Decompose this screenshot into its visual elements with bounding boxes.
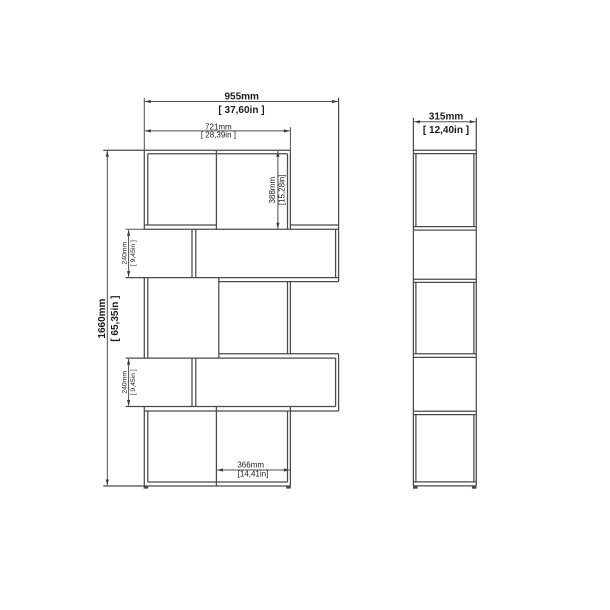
svg-text:240mm: 240mm xyxy=(121,241,128,264)
svg-text:1660mm: 1660mm xyxy=(97,298,108,338)
svg-text:240mm: 240mm xyxy=(121,371,128,394)
svg-text:[ 65,35in ]: [ 65,35in ] xyxy=(110,296,121,342)
svg-text:955mm: 955mm xyxy=(224,92,259,103)
svg-text:[ 28,39in ]: [ 28,39in ] xyxy=(201,131,236,140)
svg-text:388mm: 388mm xyxy=(268,177,277,204)
svg-text:[14,41in]: [14,41in] xyxy=(238,470,269,479)
svg-text:[15,28in]: [15,28in] xyxy=(278,174,287,205)
svg-text:366mm: 366mm xyxy=(237,461,264,470)
svg-text:315mm: 315mm xyxy=(429,111,464,122)
svg-text:[ 37,60in ]: [ 37,60in ] xyxy=(218,105,264,116)
svg-text:[ 12,40in ]: [ 12,40in ] xyxy=(423,125,469,136)
svg-text:[ 9,45in ]: [ 9,45in ] xyxy=(130,369,137,395)
svg-text:[ 9,45in ]: [ 9,45in ] xyxy=(130,240,137,266)
